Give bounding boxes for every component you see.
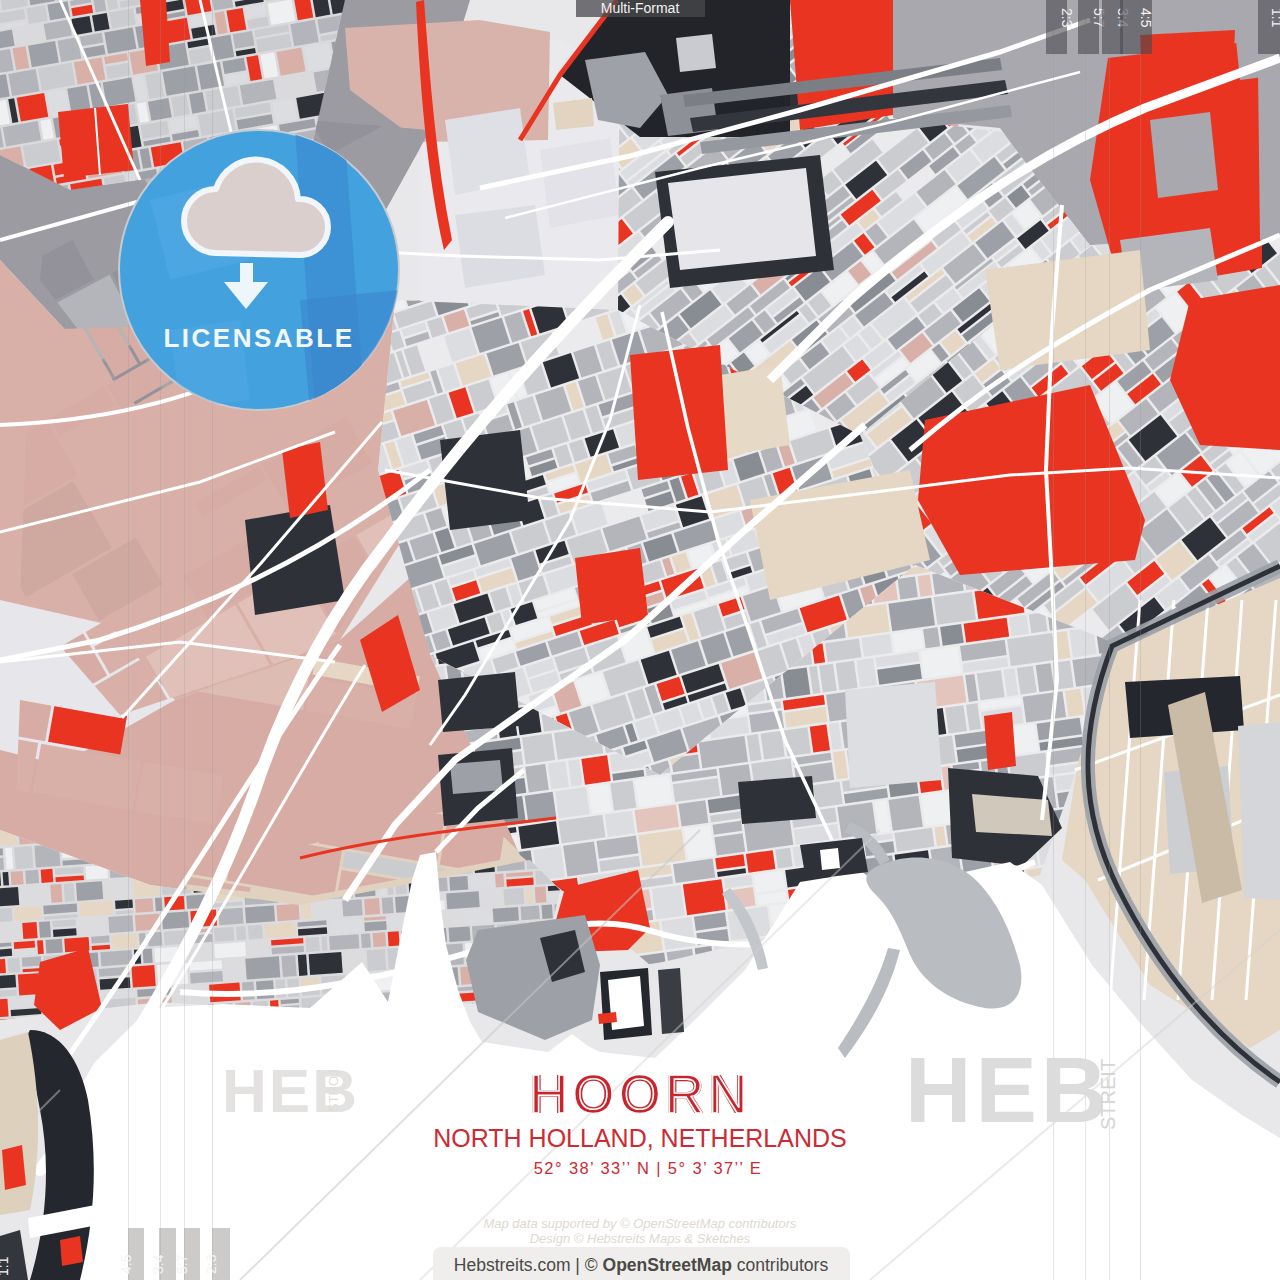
- svg-text:STROJ: STROJ: [326, 1069, 341, 1112]
- svg-text:4:5: 4:5: [118, 1254, 134, 1274]
- svg-text:52° 38’ 33’’ N | 5° 3’ 3: 52° 38’ 33’’ N | 5° 3’ 37’’ E: [534, 1159, 762, 1177]
- svg-text:2:3: 2:3: [1059, 8, 1075, 28]
- svg-text:Multi-Format: Multi-Format: [601, 0, 680, 16]
- svg-text:1:1: 1:1: [1269, 8, 1280, 28]
- svg-text:HEB: HEB: [905, 1039, 1111, 1141]
- svg-text:1:1: 1:1: [0, 1256, 11, 1276]
- svg-text:4:5: 4:5: [1138, 8, 1154, 28]
- svg-text:5:7: 5:7: [174, 1254, 190, 1274]
- svg-text:2:3: 2:3: [203, 1254, 219, 1274]
- svg-text:NORTH HOLLAND, NETHERLANDS: NORTH HOLLAND, NETHERLANDS: [433, 1124, 847, 1152]
- svg-text:HOORN: HOORN: [529, 1063, 751, 1125]
- svg-text:Hebstreits.com | © OpenStreetM: Hebstreits.com | © OpenStreetMap contrib…: [454, 1255, 829, 1275]
- svg-text:LICENSABLE: LICENSABLE: [163, 323, 354, 353]
- svg-text:3:4: 3:4: [150, 1254, 166, 1274]
- svg-text:STREIT: STREIT: [1097, 1059, 1119, 1130]
- svg-text:Design © Hebstreits Maps & Ske: Design © Hebstreits Maps & Sketches: [530, 1231, 751, 1246]
- svg-text:Map data supported by © OpenSt: Map data supported by © OpenStreetMap co…: [483, 1216, 797, 1231]
